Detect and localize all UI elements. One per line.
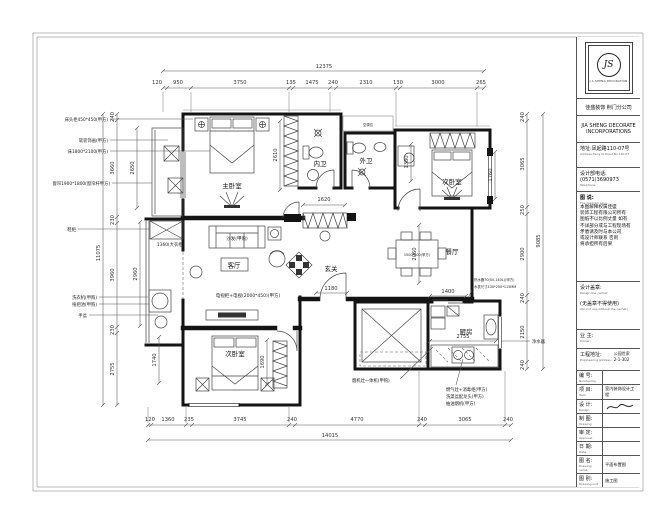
ceiling-light [444, 197, 460, 200]
table-row: 编 号:Numbering [577, 371, 640, 385]
svg-text:3000: 3000 [431, 80, 444, 86]
svg-text:2610: 2610 [273, 148, 279, 161]
svg-text:250: 250 [520, 205, 526, 215]
site-row: 工程地址: Engineering address: 公园世家 2-1-302 [577, 349, 640, 371]
svg-text:2755: 2755 [110, 362, 116, 375]
svg-text:240: 240 [328, 80, 338, 86]
svg-text:240: 240 [110, 112, 116, 122]
svg-text:950: 950 [173, 80, 183, 86]
svg-text:120: 120 [152, 80, 162, 86]
pier [284, 214, 301, 222]
table-row: 项 目:Item 室内装饰设计工程 [577, 385, 640, 400]
title-table: 编 号:Numbering 项 目:Item 室内装饰设计工程 设 计:Desi… [577, 371, 640, 487]
svg-text:2960: 2960 [133, 267, 139, 280]
svg-text:130: 130 [393, 80, 403, 86]
tv [218, 313, 246, 318]
svg-text:洗菜盆配龙头(甲方): 洗菜盆配龙头(甲方) [446, 393, 484, 400]
svg-text:抽油烟机(甲方): 抽油烟机(甲方) [446, 400, 475, 407]
room-label-foyer: 玄关 [325, 264, 339, 273]
svg-text:2150: 2150 [520, 325, 526, 338]
svg-text:热水器70(50-140L)(甲方): 热水器70(50-140L)(甲方) [474, 277, 515, 282]
svg-text:1475: 1475 [305, 80, 318, 86]
room-label-bed3: 次卧室 [225, 349, 245, 358]
logo-initials: JS [597, 53, 621, 77]
svg-text:230: 230 [110, 215, 116, 225]
room-label-bath-out: 外卫 [360, 156, 374, 165]
svg-text:240: 240 [520, 360, 526, 370]
svg-text:燃气灶+消毒柜(甲方): 燃气灶+消毒柜(甲方) [446, 386, 488, 393]
svg-text:床1800*2100(甲方): 床1800*2100(甲方) [68, 148, 109, 155]
room-label-master: 主卧室 [222, 181, 242, 190]
diagram-note: 图 说: The diagram says: 本图解释权属佳盛 装饰工程有限公司… [577, 192, 640, 282]
svg-text:2310: 2310 [359, 80, 372, 86]
floor-plan: 空调位 主卧室 [0, 0, 650, 520]
pier [347, 213, 356, 221]
note-lines: 本图解释权属佳盛 装饰工程有限公司所有 图纸不以比例丈量 如有 不详部分或与工程… [580, 205, 637, 248]
svg-text:1760: 1760 [488, 168, 494, 181]
ac-label: 空调位 [363, 122, 374, 127]
dim-left-total: 11075 [96, 245, 102, 262]
table-row: 图 别:Drawing sort 施工图 [577, 474, 640, 487]
svg-text:2650: 2650 [130, 161, 136, 174]
svg-text:235: 235 [184, 417, 194, 423]
ceiling-light [224, 205, 240, 208]
svg-text:床头柜450*450(甲方): 床头柜450*450(甲方) [65, 116, 109, 123]
owner-row: 业 主: Owner: [577, 330, 640, 349]
dim-bottom-total: 14015 [322, 433, 339, 439]
svg-text:265: 265 [476, 80, 486, 86]
designer-signature [603, 400, 640, 413]
svg-text:3065: 3065 [520, 157, 526, 170]
table-row: 审 定:Approval [577, 428, 640, 442]
svg-text:1380: 1380 [404, 155, 410, 168]
svg-text:窗帘1900*1800(窗帘杆甲方): 窗帘1900*1800(窗帘杆甲方) [53, 180, 111, 187]
drawing-sheet: 空调位 主卧室 [0, 0, 650, 520]
room-label-bath-in: 内卫 [314, 159, 328, 168]
company-logo: JS J A SHENG DECORATION [577, 37, 640, 99]
svg-text:1180: 1180 [324, 286, 337, 292]
svg-text:1360: 1360 [161, 417, 174, 423]
wardrobe-dim-label: 1360(大衣柜) [157, 241, 185, 248]
svg-text:净水器: 净水器 [532, 338, 546, 345]
room-label-living: 客厅 [228, 261, 242, 270]
design-stamp: 设计盖章: Design the cachet: (无盖章不得使用) (Do n… [577, 282, 640, 330]
svg-text:2900: 2900 [520, 247, 526, 260]
company-address: 地址:凤起路110-07号 Address:Feng Qi Road No.11… [577, 143, 640, 168]
svg-text:135: 135 [286, 80, 296, 86]
svg-text:2060: 2060 [412, 247, 418, 260]
svg-text:3750: 3750 [233, 80, 246, 86]
svg-text:水表尺寸430*250*115MM: 水表尺寸430*250*115MM [474, 284, 516, 289]
room-label-dining: 餐厅 [446, 247, 460, 256]
note-title: 图 说: [580, 194, 637, 201]
table-row: 日 期:Date [577, 442, 640, 456]
room-label-bed2: 次卧室 [442, 177, 462, 186]
svg-text:4770: 4770 [350, 417, 363, 423]
svg-text:240: 240 [417, 417, 427, 423]
tv-label: 电视柜+电视(2000*450)(甲方) [216, 292, 281, 299]
svg-text:鞋柜: 鞋柜 [67, 226, 76, 233]
dim-right-total: 9085 [536, 234, 542, 247]
company-name-cn: 佳盛装饰 荆门分公司 [577, 99, 640, 116]
svg-text:120: 120 [145, 417, 155, 423]
svg-text:3065: 3065 [458, 417, 471, 423]
svg-text:2755: 2755 [456, 334, 469, 340]
svg-text:230: 230 [110, 325, 116, 335]
svg-text:软装饰画(甲方): 软装饰画(甲方) [79, 137, 108, 144]
company-phone: 设计部电话:(0571)3690973 Telephone: [577, 168, 640, 192]
table-row: 制 图:Drawing [577, 414, 640, 428]
svg-text:洗衣机(甲购): 洗衣机(甲购) [72, 294, 97, 301]
svg-text:3960: 3960 [110, 268, 116, 281]
svg-text:1620: 1620 [317, 197, 330, 203]
table-row: 设 计:Design [577, 400, 640, 414]
svg-text:手盆: 手盆 [78, 312, 87, 319]
svg-text:240: 240 [520, 293, 526, 303]
svg-text:3660: 3660 [110, 161, 116, 174]
svg-text:1400: 1400 [441, 289, 454, 295]
table-row: 图 名:Drawing name 平面布置图 [577, 456, 640, 474]
svg-text:240: 240 [503, 417, 513, 423]
svg-text:1690: 1690 [260, 355, 266, 368]
logo-caption: J A SHENG DECORATION [590, 79, 628, 83]
svg-text:烟机灶一体机(甲购): 烟机灶一体机(甲购) [352, 377, 390, 384]
company-name-en: JIA SHENG DECORATE INCORPORATIONS [577, 116, 640, 143]
title-block: JS J A SHENG DECORATION 佳盛装饰 荆门分公司 JIA S… [576, 37, 640, 487]
svg-text:3745: 3745 [233, 417, 246, 423]
svg-text:240: 240 [520, 112, 526, 122]
svg-text:240: 240 [287, 417, 297, 423]
sofa-label: 沙发(甲购) [226, 235, 248, 242]
dim-top-total: 12375 [316, 64, 333, 70]
svg-text:1740: 1740 [152, 353, 158, 366]
svg-text:拖把池(甲购): 拖把池(甲购) [72, 301, 97, 308]
